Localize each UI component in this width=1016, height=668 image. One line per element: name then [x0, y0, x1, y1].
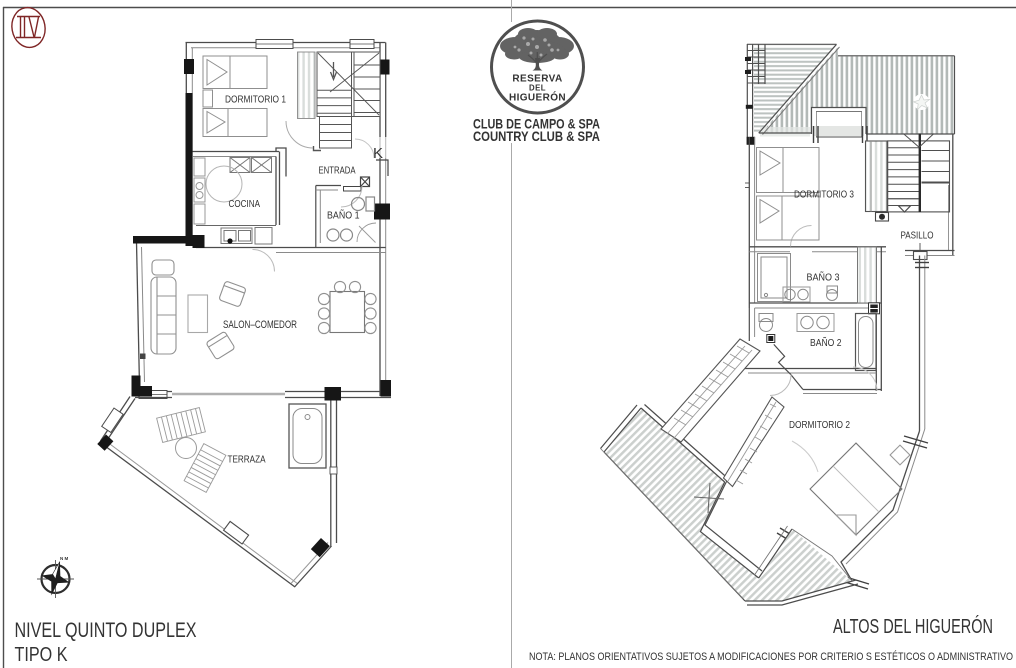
svg-text:PASILLO: PASILLO — [901, 231, 934, 242]
svg-text:TIPO K: TIPO K — [15, 643, 68, 666]
svg-text:NIVEL QUINTO DUPLEX: NIVEL QUINTO DUPLEX — [15, 618, 197, 642]
svg-text:ENTRADA: ENTRADA — [319, 166, 356, 177]
svg-text:COUNTRY CLUB & SPA: COUNTRY CLUB & SPA — [473, 129, 600, 144]
svg-text:SALON–COMEDOR: SALON–COMEDOR — [223, 319, 297, 331]
svg-text:COCINA: COCINA — [229, 199, 261, 210]
svg-text:DORMITORIO 2: DORMITORIO 2 — [789, 420, 850, 431]
svg-text:ALTOS DEL HIGUERÓN: ALTOS DEL HIGUERÓN — [833, 615, 993, 638]
svg-text:DEL: DEL — [529, 84, 546, 93]
svg-text:HIGUERÓN: HIGUERÓN — [509, 91, 566, 104]
svg-text:NOTA: PLANOS ORIENTATIVOS SUJE: NOTA: PLANOS ORIENTATIVOS SUJETOS A MODI… — [529, 650, 1013, 663]
svg-text:BAÑO 1: BAÑO 1 — [327, 209, 360, 222]
svg-text:N M: N M — [60, 556, 69, 561]
svg-text:DORMITORIO 3: DORMITORIO 3 — [794, 190, 854, 201]
svg-text:BAÑO 3: BAÑO 3 — [807, 271, 840, 284]
svg-text:BAÑO 2: BAÑO 2 — [810, 336, 842, 349]
svg-text:TERRAZA: TERRAZA — [228, 455, 266, 466]
svg-text:K: K — [373, 145, 383, 162]
svg-text:DORMITORIO 1: DORMITORIO 1 — [225, 95, 286, 106]
